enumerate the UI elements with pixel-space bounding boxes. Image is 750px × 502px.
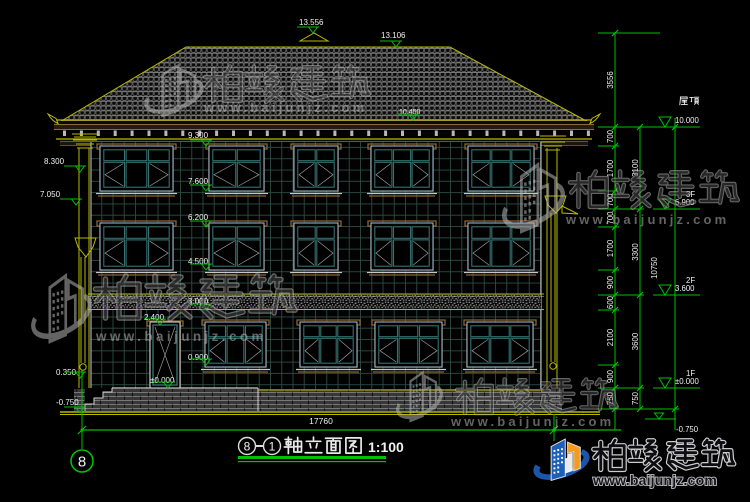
svg-text:17760: 17760 [309,416,333,426]
svg-text:www.baijunjz.com: www.baijunjz.com [592,472,717,488]
svg-text:10750: 10750 [650,256,659,278]
svg-text:700: 700 [606,129,615,143]
svg-text:0.900: 0.900 [188,353,209,362]
svg-text:8: 8 [78,454,86,471]
svg-text:9.300: 9.300 [188,131,209,140]
svg-text:8.300: 8.300 [44,157,65,166]
svg-text:www.baijunjz.com: www.baijunjz.com [565,212,729,227]
svg-text:600: 600 [606,295,615,309]
svg-text:7.050: 7.050 [40,190,61,199]
svg-text:1:100: 1:100 [368,439,404,455]
svg-text:3300: 3300 [631,243,640,261]
svg-text:www.baijunjz.com: www.baijunjz.com [95,329,267,344]
svg-text:www.baijunjz.com: www.baijunjz.com [450,414,614,429]
svg-text:3600: 3600 [631,332,640,350]
svg-text:-0.750: -0.750 [56,398,79,407]
svg-text:1: 1 [269,440,276,454]
svg-text:4.500: 4.500 [188,257,209,266]
svg-text:13.556: 13.556 [299,18,324,27]
svg-text:10.000: 10.000 [675,116,700,125]
svg-text:750: 750 [631,391,640,405]
svg-text:2.400: 2.400 [144,313,165,322]
svg-text:www.baijunjz.com: www.baijunjz.com [203,100,367,115]
svg-text:1700: 1700 [606,159,615,177]
svg-text:8: 8 [244,440,251,454]
svg-text:±0.000: ±0.000 [675,377,699,386]
svg-text:3.600: 3.600 [675,284,695,293]
svg-text:900: 900 [606,369,615,383]
svg-text:900: 900 [606,275,615,289]
svg-text:3556: 3556 [606,71,615,88]
svg-text:1700: 1700 [606,239,615,257]
svg-text:13.106: 13.106 [381,31,406,40]
svg-text:-0.750: -0.750 [676,425,699,434]
svg-text:2100: 2100 [606,328,615,346]
